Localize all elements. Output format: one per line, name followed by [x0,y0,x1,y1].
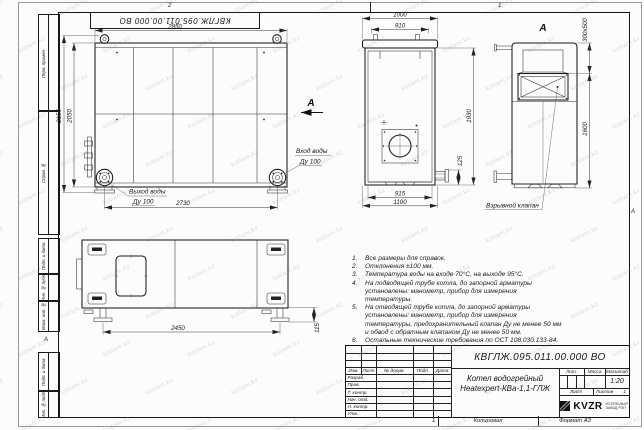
view-arrow-label: А [306,98,314,109]
dim-1100: 1100 [393,199,407,206]
drawing-sheet: 2 1 1 А А КВГЛЖ.095.011.00.000 ВО Перв. … [0,0,644,430]
explosion-valve-icon [518,74,568,101]
col-izm: Изм. [346,367,361,374]
dim-1930: 1930 [466,109,473,123]
explosion-valve-label: Взрывной клапан [486,202,539,210]
company-logo: KVZR КОТЕЛЬНЫЙ ЗАВОД РЭП [559,395,629,417]
lit-label: Лит. [559,368,584,375]
technical-notes: 1.Все размеры для справок. 2.Отклонения … [350,255,562,345]
inlet-dn-label: Ду 100 [299,159,321,166]
product-name: Котел водогрейный Heatexpert-КВа-1,1-ГЛЖ [451,368,559,417]
outlet-dn-label: Ду 100 [132,199,154,206]
row-prov: Пров. [348,382,360,387]
support-feet [84,308,289,322]
dim-2155: 2155 [56,109,63,124]
scale-value: 1:20 [605,375,629,388]
mass-label: Масса [584,368,605,375]
row-utv: Утв. [348,411,359,416]
dim-1000: 1000 [393,12,407,19]
view-a-label: А [538,23,546,34]
format-label: Формат А3 [545,418,605,424]
dim-2450: 2450 [170,325,185,332]
lifting-lug-icon [100,35,281,44]
dim-910: 910 [395,23,406,30]
sheet-label: Лист [559,388,593,395]
dim-1600: 1600 [582,122,589,136]
logo-subtitle: КОТЕЛЬНЫЙ ЗАВОД РЭП [606,402,628,410]
burner-plate-icon [382,130,418,164]
row-razrab: Разраб. [348,375,365,380]
note-item: 3.Температура воды на входе 70°С, на вых… [350,271,562,279]
note-item: 5.На отводящей трубе котла, до запорной … [350,304,562,337]
dim-2730: 2730 [175,200,190,207]
logo-icon [560,401,570,411]
title-block: Изм. Лист № докум. Подп. Дата Разраб. Пр… [345,345,630,418]
dim-115: 115 [314,323,321,333]
flue-collar [77,259,83,289]
sheets-count: 1 [623,389,626,394]
sheets-cell: Листов 1 [593,388,629,395]
outlet-label: Выход воды [129,188,166,196]
row-nachotd: Нач. отд. [348,397,369,402]
col-list: Лист [361,367,376,374]
col-data: Дата [433,367,451,374]
boiler-body [95,43,287,187]
view-plan: 2450 115 [77,240,321,335]
view-side: 2850 2155 2050 2730 Вход воды Ду 100 Вых… [56,24,331,210]
dim-300x500: 300х500 [582,18,589,42]
side-bracket [85,137,93,177]
note-item: 1.Все размеры для справок. [350,255,562,263]
dim-2850: 2850 [167,24,182,31]
col-docnum: № докум. [376,367,413,374]
note-item: 6.Остальные технические требования по ОС… [350,337,562,345]
logo-text: KVZR [573,401,602,412]
dim-125: 125 [457,155,464,166]
row-tkontr: Т. контр. [348,390,368,395]
front-pipe-stub [435,170,449,183]
hatch-opening [116,256,146,296]
view-front: 1000 910 1930 125 915 1100 [363,12,477,209]
boiler-lid [363,40,438,48]
boiler-front-body [365,48,435,185]
view-a: А 300х500 [485,18,592,210]
rear-pipe-stub [494,171,512,183]
designation: КВГЛЖ.095.011.00.000 ВО [451,346,629,368]
col-podp: Подп. [413,367,433,374]
dim-2050: 2050 [67,109,74,124]
scale-label: Масштаб [605,368,629,375]
boiler-rear-body [512,43,577,184]
dim-915: 915 [395,191,406,198]
copied-by-label: Копировал [443,418,533,424]
note-item: 4.На подводящей трубе котла, до запорной… [350,280,562,305]
row-nkontr: Н. контр. [348,404,369,409]
inlet-label: Вход воды [296,147,328,155]
